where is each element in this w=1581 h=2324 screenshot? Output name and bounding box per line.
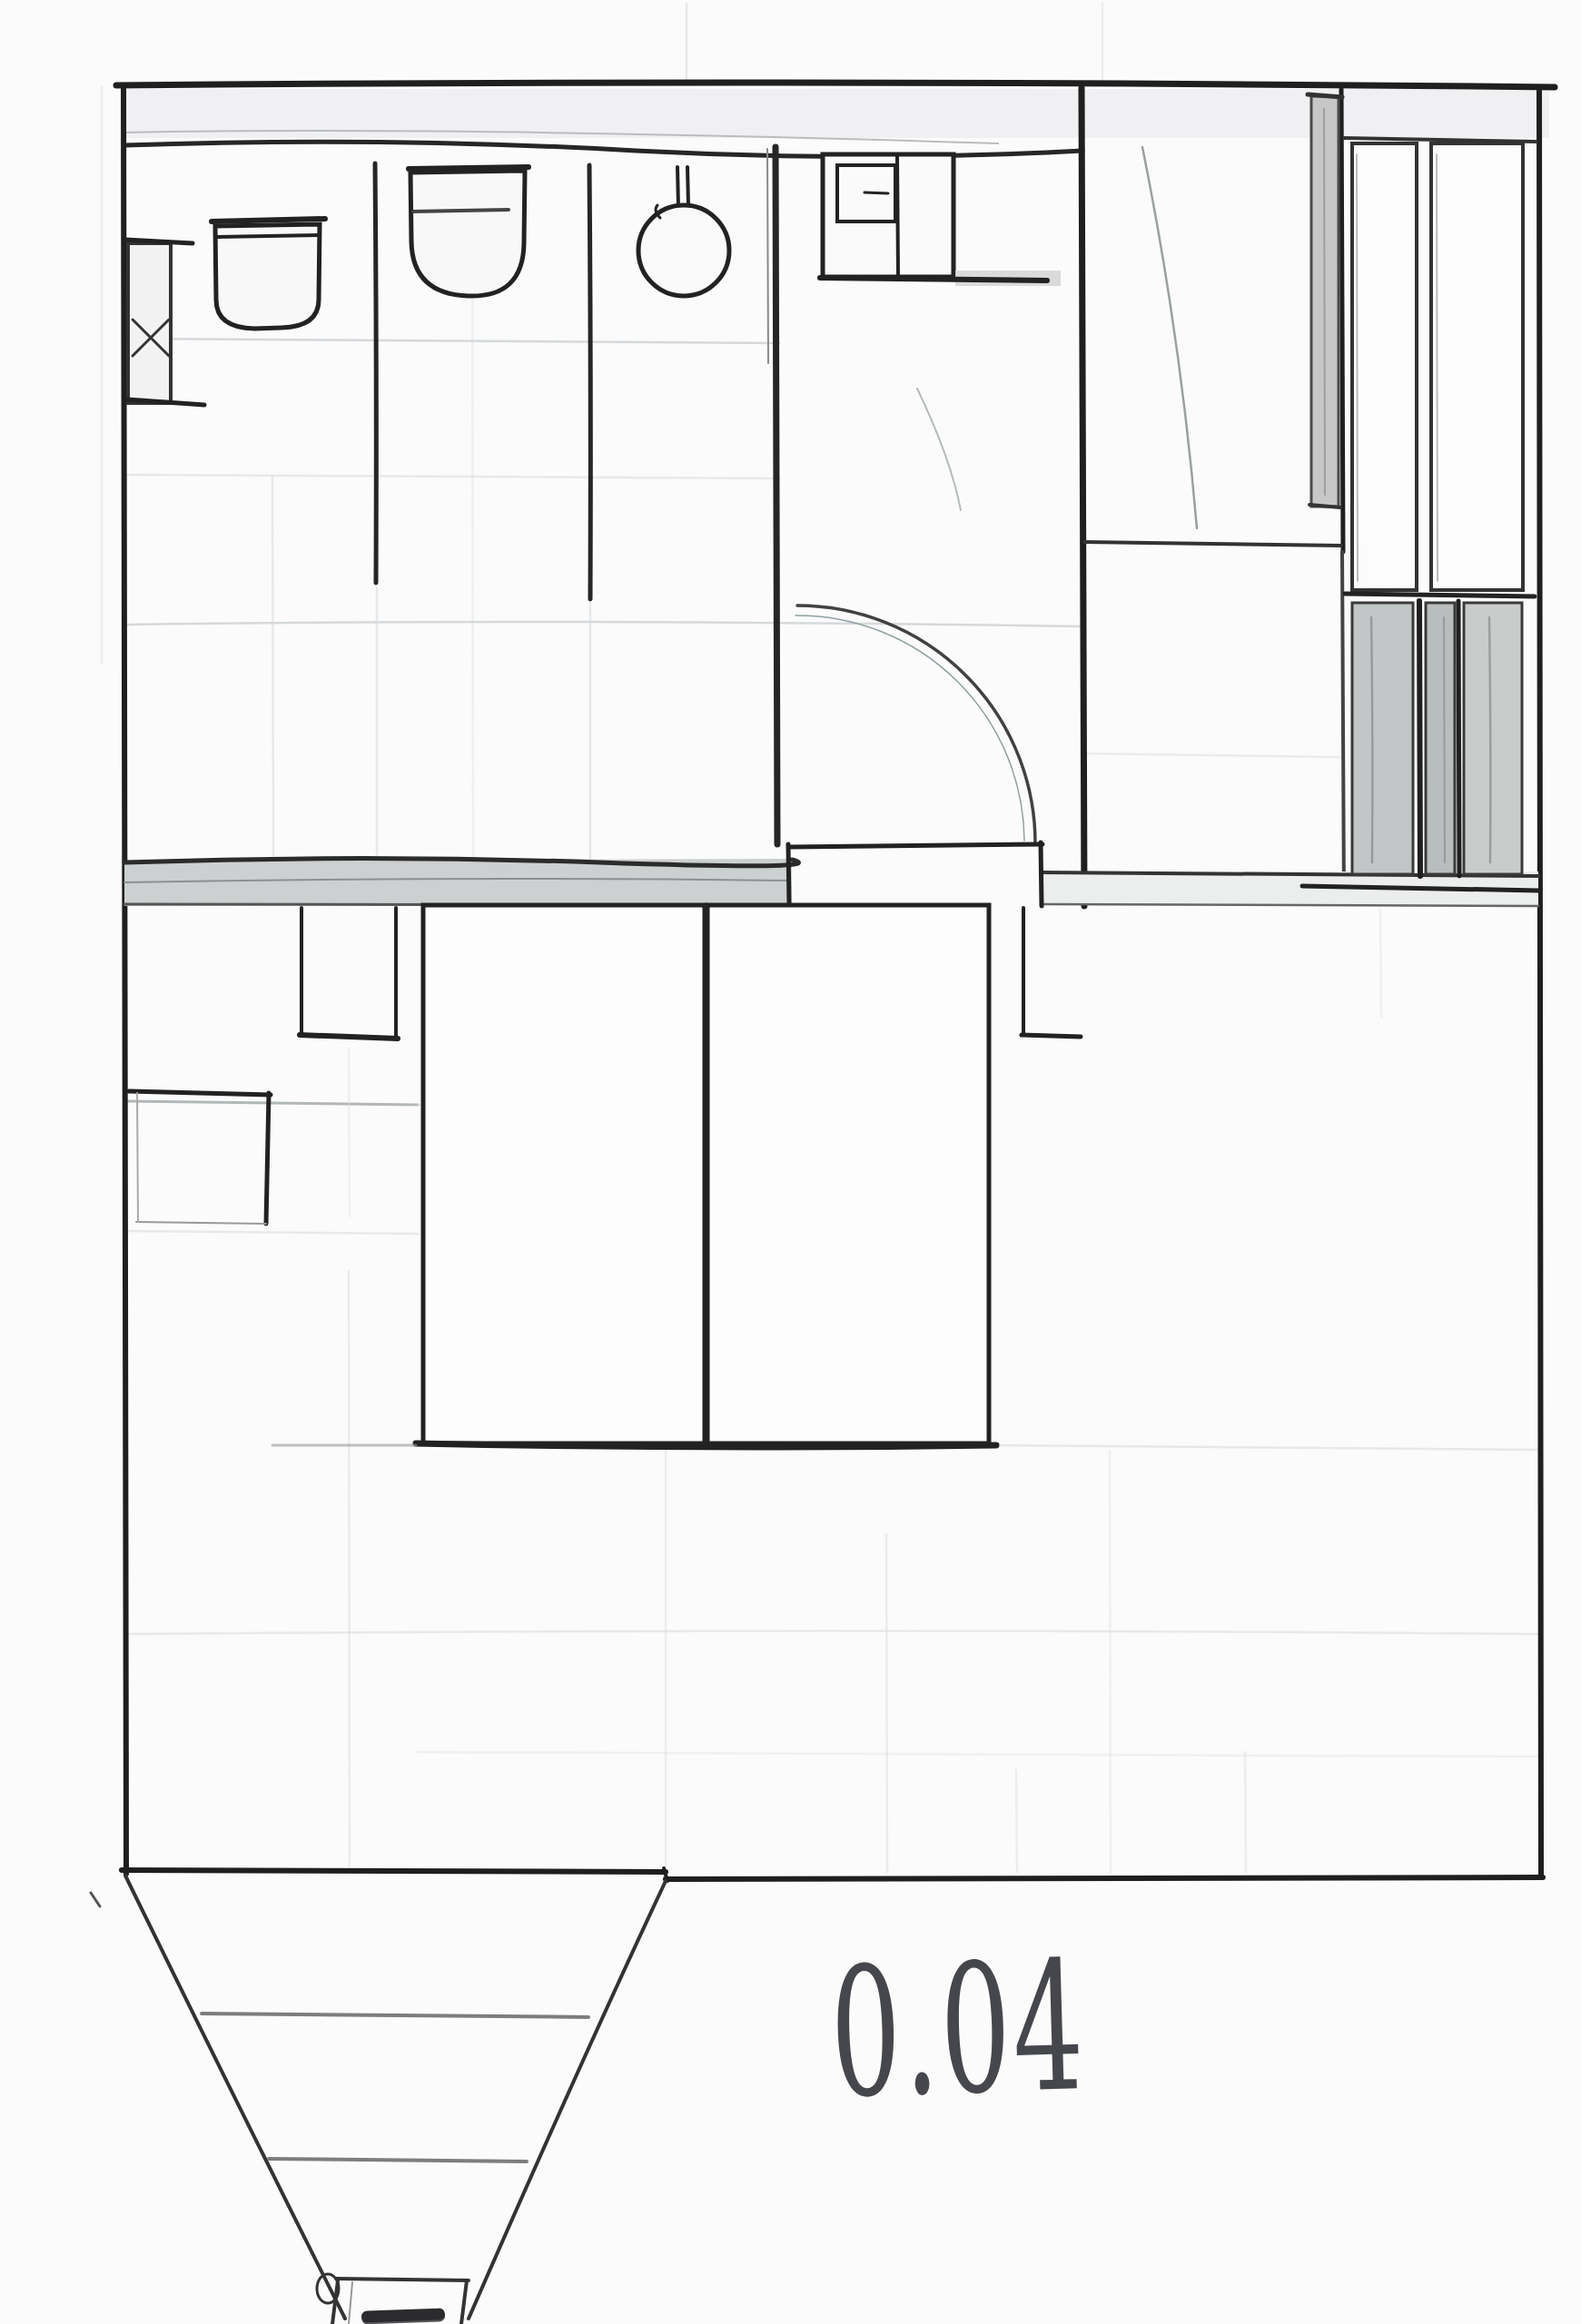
funnel-chute bbox=[91, 1876, 666, 2324]
bed-right bbox=[707, 905, 989, 1443]
toilet-bowl-3-icon bbox=[638, 167, 729, 296]
toilet-2-icon bbox=[409, 167, 529, 296]
bed-rectangles bbox=[272, 905, 996, 1447]
bottom-wall-right bbox=[666, 1877, 1543, 1879]
radiator-with-x-icon bbox=[125, 240, 204, 405]
right-room-wall bbox=[1341, 89, 1343, 552]
partition-3-door-jamb bbox=[776, 147, 777, 844]
chute-left-edge bbox=[125, 1876, 345, 2319]
door-arc bbox=[797, 606, 1035, 843]
left-wall bbox=[124, 85, 126, 1874]
chute-right-edge bbox=[469, 1881, 666, 2319]
bed-left bbox=[423, 905, 705, 1443]
partition-2 bbox=[589, 165, 590, 599]
partition-1 bbox=[375, 163, 376, 583]
shaft-panel-left bbox=[1352, 143, 1417, 590]
sink-unit-icon bbox=[820, 154, 1061, 286]
room-number-label: 0.04 bbox=[828, 1938, 1070, 2122]
side-table-icon bbox=[129, 1091, 271, 1224]
interior-walls bbox=[1082, 88, 1344, 906]
door-swing-icon bbox=[788, 606, 1042, 906]
shaft-panel-right bbox=[1431, 143, 1523, 590]
divider-wall bbox=[124, 859, 1538, 907]
right-wall bbox=[1539, 87, 1541, 1877]
plan-drawing bbox=[0, 0, 1581, 2324]
bottom-wall-left bbox=[122, 1870, 666, 1872]
shaft-column bbox=[1302, 94, 1538, 891]
vestibule-wall bbox=[1082, 88, 1084, 906]
door-leaf bbox=[790, 844, 1042, 847]
toilet-1-icon bbox=[212, 219, 325, 329]
right-room-details bbox=[917, 147, 1341, 546]
shaft-hatch-bars bbox=[1352, 601, 1522, 876]
floor-plan-sketch: 0.04 bbox=[0, 0, 1581, 2324]
